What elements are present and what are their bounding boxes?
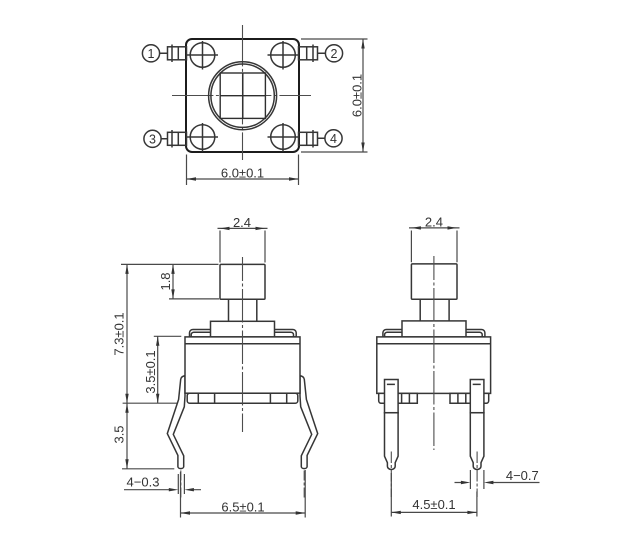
- svg-text:7.3±0.1: 7.3±0.1: [112, 312, 127, 355]
- svg-text:3.5: 3.5: [112, 425, 127, 443]
- svg-text:4: 4: [330, 132, 337, 146]
- svg-text:3: 3: [149, 132, 156, 146]
- svg-text:2.4: 2.4: [233, 215, 251, 230]
- svg-text:4.5±0.1: 4.5±0.1: [412, 497, 455, 512]
- svg-text:1: 1: [148, 47, 155, 61]
- svg-text:3.5±0.1: 3.5±0.1: [143, 350, 158, 393]
- svg-text:2: 2: [331, 47, 338, 61]
- svg-text:1.8: 1.8: [158, 272, 173, 290]
- svg-text:2.4: 2.4: [425, 215, 443, 230]
- svg-text:6.0±0.1: 6.0±0.1: [350, 74, 365, 117]
- svg-text:6.0±0.1: 6.0±0.1: [221, 166, 264, 181]
- svg-text:4−0.3: 4−0.3: [127, 475, 160, 490]
- svg-text:6.5±0.1: 6.5±0.1: [221, 500, 264, 515]
- svg-text:4−0.7: 4−0.7: [506, 468, 539, 483]
